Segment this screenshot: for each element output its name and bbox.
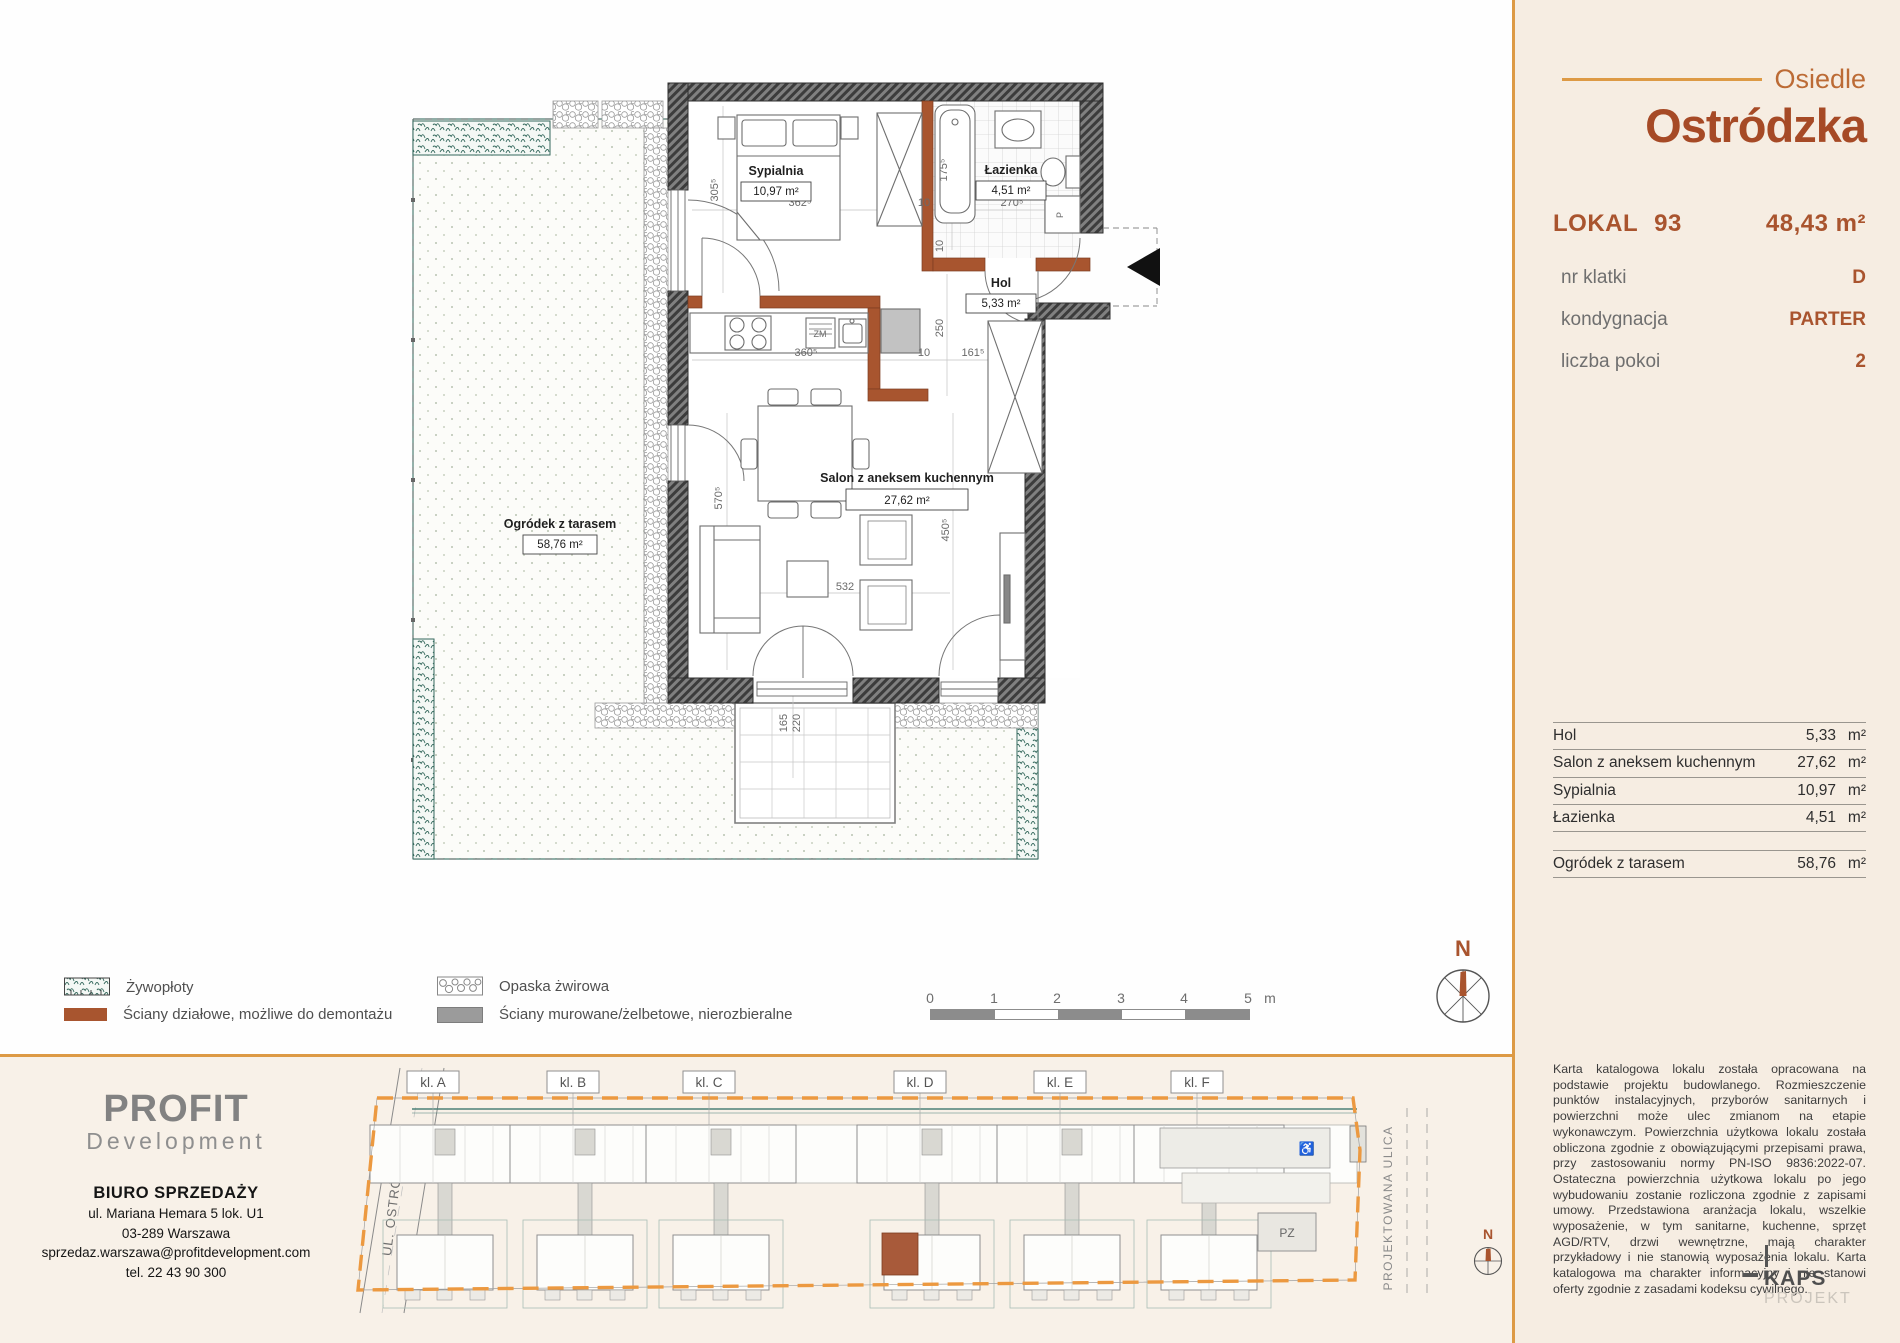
room-area: 58,76 — [1786, 855, 1836, 873]
legend-label: Ściany działowe, możliwe do demontażu — [123, 1006, 392, 1023]
svg-text:161⁵: 161⁵ — [962, 347, 985, 359]
svg-text:250: 250 — [934, 319, 946, 337]
svg-text:175⁵: 175⁵ — [938, 159, 950, 182]
scale-unit: m — [1260, 990, 1280, 1006]
table-row: Salon z aneksem kuchennym 27,62 m² — [1553, 749, 1866, 776]
estate-name: Ostródzka — [1553, 98, 1866, 153]
partition-wall-swatch-icon — [64, 1008, 107, 1021]
svg-text:570⁵: 570⁵ — [713, 487, 725, 510]
studio-name: KAPS — [1764, 1267, 1826, 1291]
svg-text:Salon z aneksem kuchennym: Salon z aneksem kuchennym — [820, 471, 994, 485]
masonry-wall-swatch-icon — [437, 1007, 483, 1023]
svg-text:10: 10 — [934, 240, 946, 252]
unit-label: LOKAL — [1553, 210, 1638, 237]
unit-area-unit: m² — [1836, 210, 1866, 237]
accessible-icon: ♿ — [1299, 1141, 1315, 1156]
unit-number: 93 — [1654, 210, 1682, 237]
gravel-icon — [437, 976, 483, 996]
room-name: Salon z aneksem kuchennym — [1553, 754, 1786, 772]
terrace — [735, 703, 895, 823]
svg-text:Łazienka: Łazienka — [985, 163, 1039, 177]
legend-label: Żywopłoty — [126, 979, 194, 996]
svg-text:10: 10 — [918, 347, 930, 359]
estate-brand: Osiedle Ostródzka — [1553, 64, 1866, 153]
building-label[interactable]: kl. B — [560, 1075, 586, 1090]
legend-item-gravel: Opaska żwirowa — [437, 976, 609, 996]
svg-text:P: P — [1055, 212, 1065, 218]
legend-item-masonry-walls: Ściany murowane/żelbetowe, nierozbieraln… — [437, 1006, 793, 1023]
sales-office-title: BIURO SPRZEDAŻY — [40, 1182, 312, 1204]
hedge-icon — [64, 976, 110, 998]
attribute-row: liczba pokoi 2 — [1561, 352, 1866, 371]
table-row: Hol 5,33 m² — [1553, 722, 1866, 749]
attribute-value: 2 — [1855, 352, 1866, 371]
svg-text:27,62 m²: 27,62 m² — [884, 495, 930, 507]
site-plan: UL. OSTRÓDZKA ♿ PZ — [312, 1063, 1517, 1341]
svg-text:220: 220 — [791, 714, 803, 732]
room-area: 5,33 — [1786, 727, 1836, 745]
room-areas-table: Hol 5,33 m² Salon z aneksem kuchennym 27… — [1553, 722, 1866, 832]
studio-subtitle: PROJEKT — [1764, 1290, 1852, 1308]
legend-item-partition-walls: Ściany działowe, możliwe do demontażu — [64, 1006, 392, 1023]
outdoor-area-table: Ogródek z tarasem 58,76 m² — [1553, 850, 1866, 878]
svg-text:5,33 m²: 5,33 m² — [982, 298, 1021, 310]
sales-office-email[interactable]: sprzedaz.warszawa@profitdevelopment.com — [40, 1243, 312, 1263]
building-label[interactable]: kl. A — [420, 1075, 446, 1090]
studio-logo-bar-icon — [1765, 1245, 1768, 1267]
sales-office-phone[interactable]: tel. 22 43 90 300 — [40, 1263, 312, 1283]
studio-logo-dash-icon — [1743, 1273, 1758, 1277]
scale-tick: 2 — [1047, 990, 1067, 1006]
info-sidebar: Osiedle Ostródzka LOKAL93 48,43 m² nr kl… — [1512, 0, 1900, 1343]
floor-plan-area: 305⁵ 362⁵ 10 270⁵ 175⁵ 10 250 360⁵ 10 16… — [0, 0, 1512, 1054]
svg-text:ZM: ZM — [814, 329, 827, 339]
scale-tick: 3 — [1111, 990, 1131, 1006]
room-area-unit: m² — [1836, 809, 1866, 827]
legend-label: Opaska żwirowa — [499, 978, 609, 995]
table-row: Ogródek z tarasem 58,76 m² — [1553, 850, 1866, 878]
scale-tick: 0 — [920, 990, 940, 1006]
unit-area: 48,43 — [1766, 210, 1829, 237]
svg-text:4,51 m²: 4,51 m² — [992, 185, 1031, 197]
compass-north-label: N — [1455, 936, 1471, 961]
parking-label: PZ — [1279, 1226, 1294, 1240]
street-right: PROJEKTOWANA ULICA — [1381, 1108, 1427, 1298]
building-label[interactable]: kl. F — [1184, 1075, 1210, 1090]
svg-text:Sypialnia: Sypialnia — [749, 164, 805, 178]
sales-office-address2: 03-289 Warszawa — [40, 1224, 312, 1244]
attribute-value: D — [1852, 268, 1866, 287]
bottom-strip: PROFIT Development BIURO SPRZEDAŻY ul. M… — [0, 1057, 1512, 1343]
sales-office-address1: ul. Mariana Hemara 5 lok. U1 — [40, 1204, 312, 1224]
estate-label: Osiedle — [1774, 64, 1866, 95]
building-label[interactable]: kl. E — [1047, 1075, 1073, 1090]
room-area-unit: m² — [1836, 727, 1866, 745]
room-name: Łazienka — [1553, 809, 1786, 827]
attribute-row: kondygnacja PARTER — [1561, 310, 1866, 329]
attribute-label: kondygnacja — [1561, 310, 1668, 329]
room-name: Hol — [1553, 727, 1786, 745]
building-label[interactable]: kl. D — [907, 1075, 934, 1090]
room-area-unit: m² — [1836, 782, 1866, 800]
room-name: Sypialnia — [1553, 782, 1786, 800]
developer-logo-sub: Development — [40, 1128, 312, 1154]
unit-header: LOKAL93 48,43 m² — [1553, 210, 1866, 238]
table-row: Łazienka 4,51 m² — [1553, 804, 1866, 832]
site-compass-north-label: N — [1483, 1226, 1493, 1242]
street-right-label: PROJEKTOWANA ULICA — [1381, 1125, 1395, 1290]
svg-text:58,76 m²: 58,76 m² — [537, 539, 583, 551]
site-compass-icon: N — [1475, 1226, 1502, 1275]
svg-text:10: 10 — [918, 197, 930, 209]
scale-bar: 0 1 2 3 4 5 m — [930, 990, 1290, 1022]
entrance-arrow-icon — [1127, 248, 1160, 286]
scale-tick: 1 — [984, 990, 1004, 1006]
legend-item-hedges: Żywopłoty — [64, 976, 194, 998]
developer-block: PROFIT Development BIURO SPRZEDAŻY ul. M… — [40, 1090, 312, 1282]
attribute-label: liczba pokoi — [1561, 352, 1660, 371]
svg-text:165: 165 — [778, 714, 790, 732]
scale-tick: 5 — [1238, 990, 1258, 1006]
room-area: 27,62 — [1786, 754, 1836, 772]
scale-bar-track — [930, 1009, 1250, 1020]
room-area-unit: m² — [1836, 754, 1866, 772]
unit-attributes: nr klatki D kondygnacja PARTER liczba po… — [1561, 268, 1866, 394]
table-row: Sypialnia 10,97 m² — [1553, 777, 1866, 804]
attribute-value: PARTER — [1789, 310, 1866, 329]
svg-text:360⁵: 360⁵ — [795, 347, 818, 359]
svg-text:450⁵: 450⁵ — [940, 519, 952, 542]
floor-plan-drawing: 305⁵ 362⁵ 10 270⁵ 175⁵ 10 250 360⁵ 10 16… — [400, 78, 1170, 868]
developer-logo: PROFIT — [40, 1090, 312, 1128]
room-area: 4,51 — [1786, 809, 1836, 827]
brand-accent-line — [1562, 78, 1762, 81]
attribute-row: nr klatki D — [1561, 268, 1866, 287]
svg-text:305⁵: 305⁵ — [709, 179, 721, 202]
attribute-label: nr klatki — [1561, 268, 1626, 287]
catalog-card-page: 305⁵ 362⁵ 10 270⁵ 175⁵ 10 250 360⁵ 10 16… — [0, 0, 1900, 1343]
svg-text:10,97 m²: 10,97 m² — [753, 186, 799, 198]
studio-logo: KAPS PROJEKT — [1743, 1243, 1883, 1313]
compass-icon: N — [1428, 934, 1498, 1030]
room-area: 10,97 — [1786, 782, 1836, 800]
room-name: Ogródek z tarasem — [1553, 855, 1786, 873]
scale-tick: 4 — [1174, 990, 1194, 1006]
legend-label: Ściany murowane/żelbetowe, nierozbieraln… — [499, 1006, 793, 1023]
highlighted-unit[interactable] — [882, 1233, 918, 1275]
svg-text:Hol: Hol — [991, 276, 1011, 290]
svg-text:Ogródek z tarasem: Ogródek z tarasem — [504, 517, 617, 531]
room-area-unit: m² — [1836, 855, 1866, 873]
building-label[interactable]: kl. C — [696, 1075, 723, 1090]
svg-text:532: 532 — [836, 581, 854, 593]
